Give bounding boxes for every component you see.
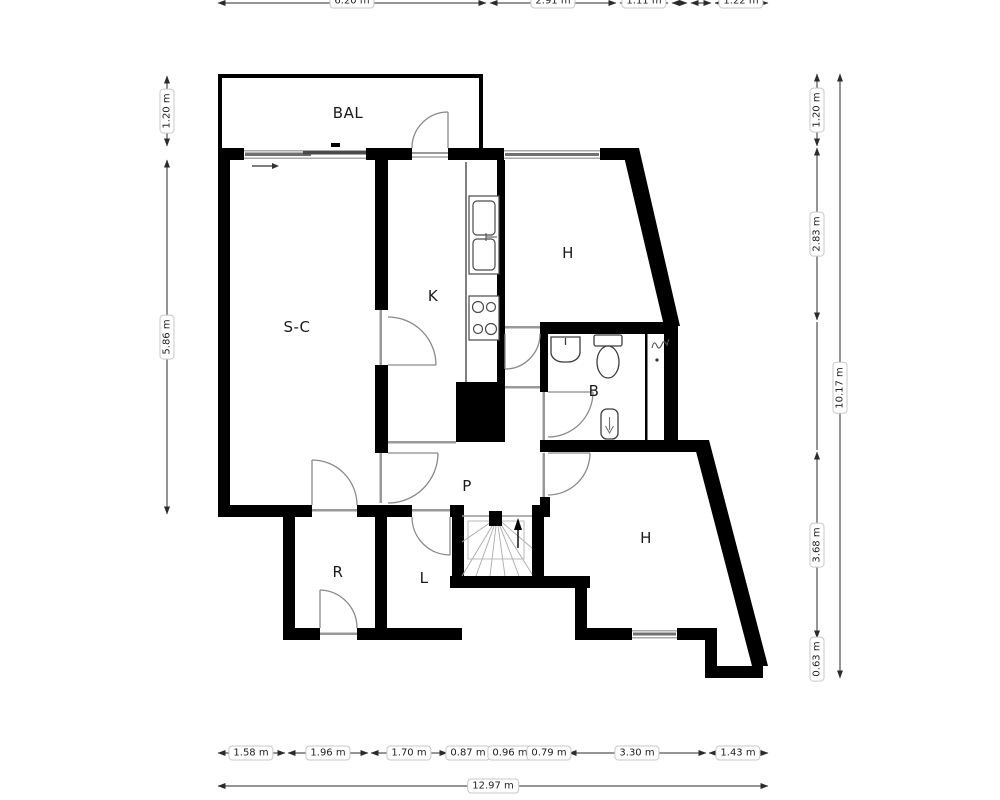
dim-bottom-3: 1.70 m <box>386 746 431 761</box>
dim-right-1: 1.20 m <box>810 87 825 132</box>
room-label-living: S-C <box>284 318 311 336</box>
room-label-hall-upper: H <box>562 244 574 262</box>
room-label-r: R <box>333 563 344 581</box>
room-label-kitchen: K <box>428 287 438 305</box>
dim-top-1: 6.20 m <box>329 0 374 9</box>
staircase <box>462 511 532 576</box>
room-label-balcony: BAL <box>333 104 363 122</box>
dim-bottom-1: 1.58 m <box>228 746 273 761</box>
dim-bottom-6: 0.79 m <box>526 746 571 761</box>
dim-bottom-8: 1.43 m <box>715 746 760 761</box>
room-label-l: L <box>420 569 429 587</box>
dim-bottom-4: 0.87 m <box>445 746 490 761</box>
dim-top-4: 1.22 m <box>718 0 763 9</box>
toilet-tank <box>594 335 622 346</box>
dim-bottom-7: 3.30 m <box>614 746 659 761</box>
dim-right-3: 3.68 m <box>810 522 825 567</box>
dim-top-3: 1.11 m <box>621 0 666 9</box>
stairs-up-arrow-icon <box>514 518 522 530</box>
floor-plan: BAL S-C K H B P R L H 6.20 m 2.91 m 1.11… <box>0 0 1000 800</box>
dim-bottom-total: 12.97 m <box>467 779 519 794</box>
dim-left-1: 1.20 m <box>160 88 175 133</box>
dim-left-2: 5.86 m <box>160 314 175 359</box>
dim-right-4: 0.63 m <box>810 636 825 681</box>
walls <box>218 74 768 678</box>
room-label-hall-lower: H <box>640 529 652 547</box>
toilet-bowl <box>597 346 619 378</box>
dim-right-total: 10.17 m <box>833 362 848 414</box>
dim-right-2: 2.83 m <box>810 211 825 256</box>
door-openings <box>312 148 548 640</box>
room-label-passage: P <box>462 477 472 495</box>
floor-plan-canvas <box>0 0 1000 800</box>
window-arrow-icon <box>252 163 279 169</box>
kitchen-fixtures <box>466 162 499 382</box>
dim-top-2: 2.91 m <box>530 0 575 9</box>
room-label-bath: B <box>589 382 600 400</box>
dim-bottom-2: 1.96 m <box>305 746 350 761</box>
bath-fixtures <box>551 335 669 439</box>
